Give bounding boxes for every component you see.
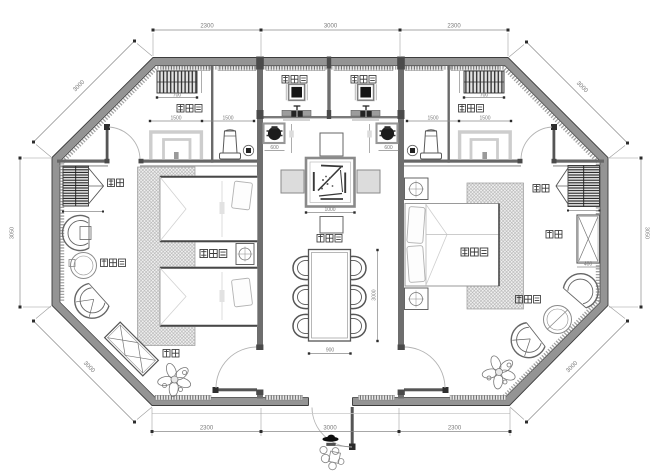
svg-text:2300: 2300 xyxy=(447,24,461,30)
svg-text:600: 600 xyxy=(270,145,279,151)
svg-text:3050: 3050 xyxy=(644,227,650,239)
svg-text:1500: 1500 xyxy=(479,115,490,121)
svg-text:3000: 3000 xyxy=(372,289,378,300)
svg-text:3050: 3050 xyxy=(10,227,16,239)
svg-text:400: 400 xyxy=(584,262,593,268)
svg-text:1500: 1500 xyxy=(427,115,438,121)
svg-text:3000: 3000 xyxy=(324,24,338,30)
svg-text:700: 700 xyxy=(173,93,182,99)
svg-text:2300: 2300 xyxy=(448,426,462,432)
svg-text:900: 900 xyxy=(326,348,335,354)
svg-text:600: 600 xyxy=(384,145,393,151)
svg-text:3000: 3000 xyxy=(323,426,337,432)
svg-text:1500: 1500 xyxy=(170,115,181,121)
svg-text:1500: 1500 xyxy=(222,115,233,121)
svg-text:2300: 2300 xyxy=(200,24,214,30)
svg-text:1000: 1000 xyxy=(324,207,335,213)
svg-text:700: 700 xyxy=(480,93,489,99)
svg-text:2300: 2300 xyxy=(200,426,214,432)
